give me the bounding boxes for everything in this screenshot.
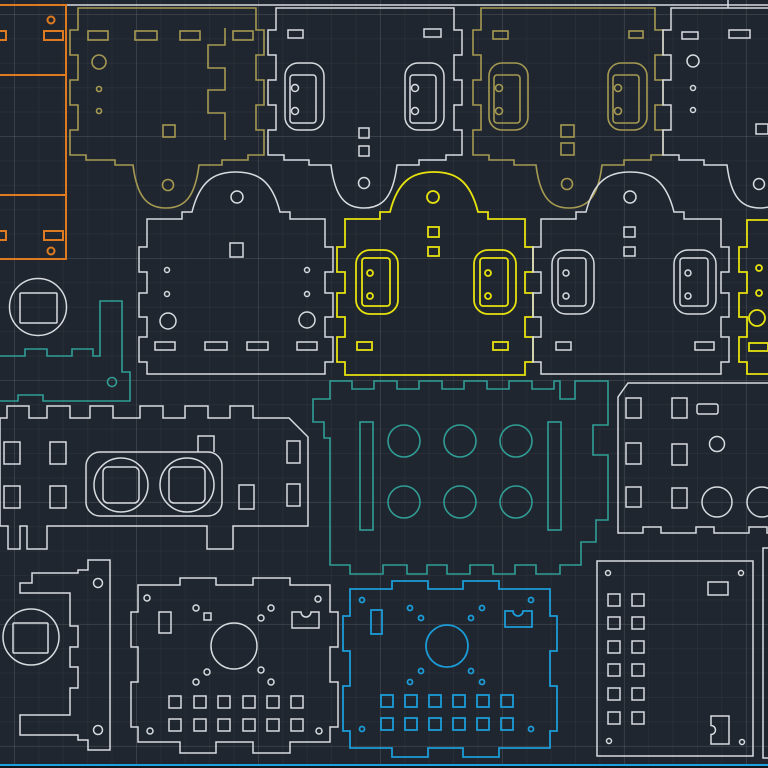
orange-side-panel[interactable] (0, 5, 66, 259)
circle-square-disc-part-lower[interactable] (3, 609, 59, 665)
yellow-crown-face-panel[interactable] (337, 172, 533, 375)
white-base-plate-goggles[interactable] (0, 406, 308, 549)
drawing-canvas[interactable] (0, 0, 768, 768)
circle-square-disc-part-upper[interactable] (10, 279, 67, 336)
white-motor-mount-panel[interactable] (131, 578, 338, 753)
khaki-scalloped-side-panel-2[interactable] (473, 8, 663, 208)
white-crown-back-panel[interactable] (139, 172, 333, 374)
blue-motor-mount-panel[interactable] (343, 581, 557, 757)
white-crown-face-panel[interactable] (533, 172, 729, 374)
white-plate-rounded-corner[interactable] (618, 383, 768, 533)
white-rect-panel-grid-holes[interactable] (597, 561, 753, 756)
white-h-bracket-strip[interactable] (20, 560, 110, 750)
command-panel-divider (0, 764, 768, 768)
teal-perforated-plate[interactable] (313, 381, 608, 574)
right-edge-partial-panel[interactable] (763, 548, 768, 758)
offcanvas-top-edge[interactable] (0, 0, 768, 8)
yellow-face-panel-partial[interactable] (739, 220, 768, 374)
white-scalloped-side-panel-2[interactable] (663, 8, 768, 208)
cad-viewport[interactable] (0, 0, 768, 768)
white-scalloped-side-panel-1[interactable] (268, 8, 462, 208)
khaki-scalloped-side-panel-1[interactable] (70, 8, 264, 208)
